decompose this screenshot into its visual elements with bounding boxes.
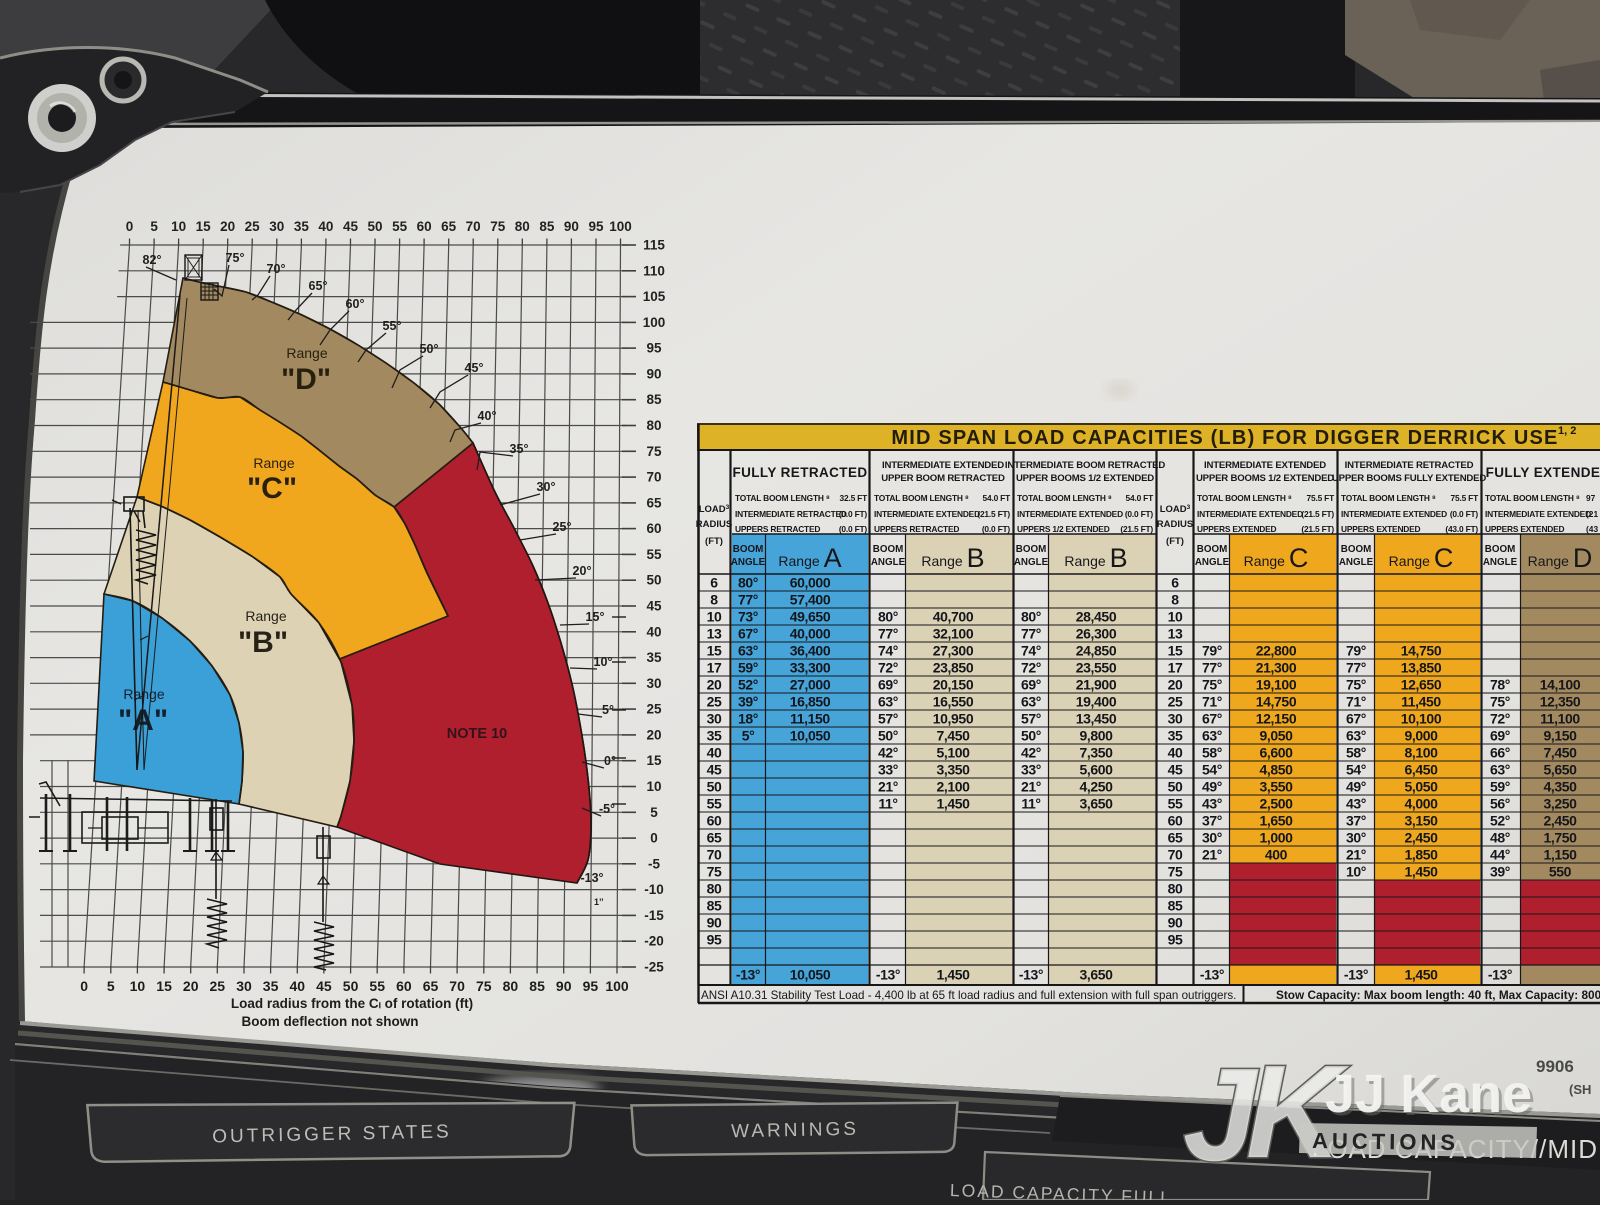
svg-text:14,100: 14,100: [1540, 677, 1581, 693]
svg-text:30: 30: [269, 219, 284, 234]
svg-text:7,450: 7,450: [936, 728, 970, 744]
svg-text:85: 85: [1168, 898, 1183, 914]
svg-text:40: 40: [1168, 745, 1183, 761]
svg-text:ANGLE: ANGLE: [731, 557, 766, 568]
svg-text:20: 20: [1168, 677, 1183, 693]
svg-text:27,000: 27,000: [790, 677, 831, 693]
svg-text:BOOM: BOOM: [1341, 544, 1371, 555]
svg-text:(43.0 FT): (43.0 FT): [1445, 524, 1478, 534]
svg-text:-15: -15: [644, 908, 664, 923]
svg-text:(21: (21: [1586, 509, 1598, 519]
svg-text:9,000: 9,000: [1404, 728, 1438, 744]
svg-text:8,100: 8,100: [1404, 745, 1438, 761]
svg-text:33°: 33°: [1021, 762, 1041, 778]
svg-text:82°: 82°: [143, 253, 162, 267]
svg-text:70: 70: [646, 470, 661, 485]
svg-text:(21.5 FT): (21.5 FT): [977, 509, 1010, 519]
svg-text:11,150: 11,150: [790, 711, 830, 727]
svg-text:55: 55: [1168, 796, 1183, 812]
svg-text:10: 10: [707, 609, 722, 625]
svg-text:35: 35: [263, 978, 279, 994]
svg-text:21,300: 21,300: [1256, 660, 1297, 676]
svg-text:NOTE 10: NOTE 10: [447, 726, 507, 742]
svg-text:85: 85: [707, 898, 722, 914]
svg-text:27,300: 27,300: [933, 643, 974, 659]
svg-text:11°: 11°: [1021, 796, 1040, 812]
svg-text:23,850: 23,850: [933, 660, 974, 676]
svg-text:(FT): (FT): [1166, 536, 1184, 547]
svg-text:50°: 50°: [878, 728, 898, 744]
svg-text:67°: 67°: [1346, 711, 1366, 727]
svg-text:25: 25: [210, 978, 226, 994]
svg-text:12,650: 12,650: [1401, 677, 1442, 693]
svg-text:22,800: 22,800: [1256, 643, 1297, 659]
svg-text:60: 60: [646, 521, 661, 536]
svg-text:115: 115: [643, 238, 665, 253]
svg-text:8: 8: [710, 592, 718, 608]
svg-text:2,450: 2,450: [1404, 830, 1438, 846]
svg-text:35: 35: [1168, 728, 1183, 744]
svg-text:15: 15: [196, 219, 212, 234]
svg-text:69°: 69°: [878, 677, 898, 693]
svg-text:RADIUS: RADIUS: [1157, 519, 1193, 530]
svg-text:74°: 74°: [878, 643, 898, 659]
svg-text:58°: 58°: [1202, 745, 1222, 761]
svg-text:UPPERS RETRACTED: UPPERS RETRACTED: [874, 524, 959, 534]
svg-text:-5: -5: [648, 856, 660, 871]
svg-text:63°: 63°: [738, 643, 758, 659]
svg-text:44°: 44°: [1490, 847, 1510, 863]
svg-text:79°: 79°: [1346, 643, 1366, 659]
svg-text:36,400: 36,400: [790, 643, 831, 659]
svg-text:20: 20: [220, 219, 235, 234]
svg-text:(0.0 FT): (0.0 FT): [839, 524, 868, 534]
svg-text:-13°: -13°: [876, 967, 900, 983]
svg-text:INTERMEDIATE RETRACTED: INTERMEDIATE RETRACTED: [735, 509, 847, 519]
svg-text:45: 45: [646, 599, 662, 614]
svg-text:6: 6: [1171, 575, 1179, 591]
svg-text:(21.5 FT): (21.5 FT): [1301, 524, 1334, 534]
svg-text:80: 80: [503, 978, 519, 994]
svg-text:65: 65: [423, 978, 439, 994]
svg-text:50°: 50°: [1021, 728, 1041, 744]
svg-text:49°: 49°: [1346, 779, 1366, 795]
svg-text:42°: 42°: [878, 745, 898, 761]
svg-text:50°: 50°: [420, 342, 439, 356]
svg-text:(0.0 FT): (0.0 FT): [1450, 509, 1479, 519]
svg-text:43°: 43°: [1202, 796, 1222, 812]
svg-text:21°: 21°: [1021, 779, 1041, 795]
svg-text:LOAD3: LOAD3: [699, 504, 730, 515]
svg-text:35°: 35°: [510, 442, 529, 456]
svg-text:63°: 63°: [1490, 762, 1510, 778]
svg-text:95: 95: [707, 932, 722, 948]
svg-text:BOOM: BOOM: [1485, 544, 1515, 555]
svg-text:67°: 67°: [1202, 711, 1222, 727]
svg-text:AUCTIONS: AUCTIONS: [1312, 1128, 1459, 1155]
svg-text:LOAD3: LOAD3: [1160, 504, 1191, 515]
svg-text:97: 97: [1586, 493, 1596, 503]
svg-text:50: 50: [343, 978, 359, 994]
svg-text:3,150: 3,150: [1404, 813, 1438, 829]
svg-text:95: 95: [646, 341, 662, 356]
svg-text:80°: 80°: [738, 575, 758, 591]
svg-text:ANGLE: ANGLE: [1339, 557, 1374, 568]
svg-text:TOTAL BOOM LENGTH ⁸: TOTAL BOOM LENGTH ⁸: [1485, 493, 1580, 503]
svg-text:40: 40: [646, 624, 661, 639]
svg-text:5,650: 5,650: [1543, 762, 1577, 778]
svg-text:58°: 58°: [1346, 745, 1366, 761]
svg-text:75: 75: [490, 219, 506, 234]
svg-text:13: 13: [1168, 626, 1183, 642]
svg-text:72°: 72°: [1490, 711, 1510, 727]
svg-text:JJ Kane: JJ Kane: [1325, 1064, 1532, 1124]
svg-text:21°: 21°: [878, 779, 898, 795]
svg-text:85: 85: [539, 219, 555, 234]
svg-text:59°: 59°: [1490, 779, 1510, 795]
svg-text:TOTAL BOOM LENGTH ⁸: TOTAL BOOM LENGTH ⁸: [874, 493, 969, 503]
svg-text:UPPERS EXTENDED: UPPERS EXTENDED: [1341, 524, 1421, 534]
svg-text:40,700: 40,700: [933, 609, 974, 625]
svg-text:80: 80: [707, 881, 722, 897]
svg-text:70: 70: [449, 978, 465, 994]
svg-text:3,350: 3,350: [936, 762, 970, 778]
svg-text:WARNINGS: WARNINGS: [731, 1119, 859, 1143]
svg-text:25: 25: [646, 702, 662, 717]
svg-text:30: 30: [236, 978, 252, 994]
svg-text:90: 90: [646, 366, 661, 381]
svg-text:55: 55: [392, 219, 408, 234]
svg-text:1,450: 1,450: [936, 967, 970, 983]
svg-text:1’’: 1’’: [594, 897, 604, 907]
svg-text:(43: (43: [1586, 524, 1598, 534]
svg-text:Range: Range: [253, 455, 294, 471]
svg-text:66°: 66°: [1490, 745, 1510, 761]
svg-text:39°: 39°: [1490, 864, 1510, 880]
svg-text:75°: 75°: [1490, 694, 1510, 710]
svg-text:Stow Capacity: Max boom length: Stow Capacity: Max boom length: 40 ft, M…: [1276, 988, 1600, 1002]
svg-text:39°: 39°: [738, 694, 758, 710]
svg-text:28,450: 28,450: [1076, 609, 1117, 625]
svg-text:30: 30: [646, 676, 661, 691]
svg-text:5,100: 5,100: [936, 745, 970, 761]
svg-text:30°: 30°: [1202, 830, 1222, 846]
svg-text:37°: 37°: [1346, 813, 1366, 829]
svg-text:40,000: 40,000: [790, 626, 831, 642]
svg-text:3,650: 3,650: [1079, 967, 1113, 983]
svg-text:7,350: 7,350: [1079, 745, 1113, 761]
svg-text:75.5 FT: 75.5 FT: [1307, 493, 1336, 503]
svg-text:20: 20: [646, 727, 661, 742]
svg-text:70: 70: [707, 847, 722, 863]
svg-text:95: 95: [588, 219, 604, 234]
svg-text:40°: 40°: [478, 409, 497, 423]
svg-text:72°: 72°: [878, 660, 898, 676]
svg-text:77°: 77°: [1202, 660, 1222, 676]
svg-text:-13°: -13°: [580, 871, 603, 885]
svg-text:14,750: 14,750: [1256, 694, 1297, 710]
svg-text:56°: 56°: [1490, 796, 1510, 812]
svg-text:63°: 63°: [1346, 728, 1366, 744]
svg-text:1,750: 1,750: [1543, 830, 1577, 846]
svg-text:1,000: 1,000: [1259, 830, 1293, 846]
svg-text:"B": "B": [238, 626, 288, 659]
svg-text:(21.5 FT): (21.5 FT): [1301, 509, 1334, 519]
svg-text:-25: -25: [644, 960, 664, 975]
svg-text:11°: 11°: [878, 796, 897, 812]
svg-text:50: 50: [707, 779, 722, 795]
svg-text:90: 90: [1168, 915, 1183, 931]
svg-text:63°: 63°: [1202, 728, 1222, 744]
svg-text:75: 75: [476, 978, 492, 994]
svg-text:75: 75: [1168, 864, 1183, 880]
svg-text:45: 45: [316, 978, 332, 994]
svg-text:59°: 59°: [738, 660, 758, 676]
svg-text:2,450: 2,450: [1543, 813, 1577, 829]
svg-text:10°: 10°: [594, 655, 613, 669]
svg-text:60: 60: [1168, 813, 1183, 829]
svg-text:Load radius from the Cₗ of ro: Load radius from the Cₗ of rotation (ft): [231, 996, 473, 1011]
svg-text:72°: 72°: [1021, 660, 1041, 676]
svg-text:13: 13: [707, 626, 722, 642]
svg-text:65: 65: [707, 830, 722, 846]
svg-text:15°: 15°: [586, 610, 605, 624]
svg-text:1,450: 1,450: [1404, 864, 1438, 880]
svg-text:5: 5: [107, 978, 115, 994]
svg-text:35: 35: [294, 219, 310, 234]
svg-text:19,400: 19,400: [1076, 694, 1117, 710]
svg-text:79°: 79°: [1202, 643, 1222, 659]
svg-text:90: 90: [556, 978, 572, 994]
svg-text:ANGLE: ANGLE: [1014, 557, 1049, 568]
svg-text:INTERMEDIATE EXTENDED: INTERMEDIATE EXTENDED: [1197, 509, 1303, 519]
svg-text:57,400: 57,400: [790, 592, 831, 608]
svg-text:60: 60: [417, 219, 432, 234]
svg-text:TOTAL BOOM LENGTH ⁸: TOTAL BOOM LENGTH ⁸: [1017, 493, 1112, 503]
svg-text:BOOM: BOOM: [733, 544, 763, 555]
svg-text:32.5 FT: 32.5 FT: [840, 493, 869, 503]
svg-text:9,150: 9,150: [1543, 728, 1577, 744]
svg-text:70: 70: [466, 219, 481, 234]
svg-text:-13°: -13°: [1019, 967, 1043, 983]
svg-text:71°: 71°: [1202, 694, 1222, 710]
svg-text:9,800: 9,800: [1079, 728, 1113, 744]
svg-text:25: 25: [1168, 694, 1183, 710]
svg-text:60: 60: [396, 978, 412, 994]
svg-text:INTERMEDIATE EXTENDED: INTERMEDIATE EXTENDED: [882, 460, 1004, 471]
svg-text:33°: 33°: [878, 762, 898, 778]
svg-text:54°: 54°: [1202, 762, 1222, 778]
svg-text:90: 90: [564, 219, 579, 234]
svg-text:80: 80: [1168, 881, 1183, 897]
svg-text:20: 20: [707, 677, 722, 693]
svg-text:10,050: 10,050: [790, 967, 831, 983]
svg-text:Boom deflection not shown: Boom deflection not shown: [242, 1014, 419, 1029]
svg-text:12,150: 12,150: [1256, 711, 1297, 727]
svg-text:FULLY RETRACTED: FULLY RETRACTED: [732, 465, 867, 480]
svg-text:0: 0: [650, 831, 658, 846]
svg-text:21°: 21°: [1346, 847, 1366, 863]
svg-text:25: 25: [245, 219, 261, 234]
svg-text:35: 35: [707, 728, 722, 744]
svg-text:100: 100: [609, 219, 632, 234]
svg-text:1,450: 1,450: [1404, 967, 1438, 983]
svg-text:15: 15: [1168, 643, 1183, 659]
svg-text:INTERMEDIATE EXTENDED: INTERMEDIATE EXTENDED: [1485, 509, 1591, 519]
svg-text:RADIUS: RADIUS: [696, 519, 732, 530]
svg-text:74°: 74°: [1021, 643, 1041, 659]
svg-text:(21.5 FT): (21.5 FT): [1120, 524, 1153, 534]
svg-text:(0.0 FT): (0.0 FT): [982, 524, 1011, 534]
svg-text:0: 0: [80, 978, 88, 994]
svg-text:UPPERS RETRACTED: UPPERS RETRACTED: [735, 524, 820, 534]
svg-text:77°: 77°: [1021, 626, 1041, 642]
svg-text:49,650: 49,650: [790, 609, 831, 625]
svg-text:4,250: 4,250: [1079, 779, 1113, 795]
svg-text:75: 75: [646, 444, 662, 459]
svg-text:100: 100: [643, 315, 666, 330]
svg-text:0°: 0°: [604, 754, 616, 768]
svg-text:21,900: 21,900: [1076, 677, 1117, 693]
svg-text:15: 15: [707, 643, 722, 659]
svg-text:-13°: -13°: [1344, 967, 1368, 983]
svg-text:42°: 42°: [1021, 745, 1041, 761]
svg-text:FULLY EXTENDED: FULLY EXTENDED: [1486, 465, 1600, 480]
svg-text:50: 50: [367, 219, 382, 234]
svg-text:6,600: 6,600: [1259, 745, 1293, 761]
svg-text:57°: 57°: [1021, 711, 1041, 727]
svg-text:TOTAL BOOM LENGTH ⁸: TOTAL BOOM LENGTH ⁸: [1341, 493, 1436, 503]
svg-text:Range: Range: [245, 608, 286, 624]
svg-text:65: 65: [646, 495, 662, 510]
svg-text:UPPERS 1/2 EXTENDED: UPPERS 1/2 EXTENDED: [1017, 524, 1110, 534]
svg-text:100: 100: [605, 978, 629, 994]
svg-text:60°: 60°: [346, 297, 365, 311]
svg-text:40: 40: [318, 219, 333, 234]
svg-text:105: 105: [643, 289, 666, 304]
svg-text:3,250: 3,250: [1543, 796, 1577, 812]
svg-text:10°: 10°: [1346, 864, 1366, 880]
svg-text:80°: 80°: [878, 609, 898, 625]
svg-text:67°: 67°: [738, 626, 758, 642]
svg-text:3,650: 3,650: [1079, 796, 1113, 812]
svg-text:17: 17: [707, 660, 722, 676]
svg-text:20: 20: [183, 978, 199, 994]
svg-text:1, 2: 1, 2: [1558, 425, 1576, 437]
svg-text:UPPER BOOMS FULLY EXTENDED: UPPER BOOMS FULLY EXTENDED: [1332, 473, 1486, 484]
svg-text:UPPER BOOM RETRACTED: UPPER BOOM RETRACTED: [881, 473, 1005, 484]
svg-text:16,550: 16,550: [933, 694, 974, 710]
svg-text:"C": "C": [247, 472, 297, 505]
svg-text:10,950: 10,950: [933, 711, 974, 727]
svg-text:70: 70: [1168, 847, 1183, 863]
svg-text:INTERMEDIATE EXTENDED: INTERMEDIATE EXTENDED: [874, 509, 980, 519]
svg-text:85: 85: [646, 392, 662, 407]
svg-text:5: 5: [650, 805, 658, 820]
svg-text:55: 55: [646, 547, 662, 562]
svg-text:25°: 25°: [553, 520, 572, 534]
svg-text:49°: 49°: [1202, 779, 1222, 795]
svg-text:13,450: 13,450: [1076, 711, 1117, 727]
svg-text:69°: 69°: [1490, 728, 1510, 744]
svg-text:80°: 80°: [1021, 609, 1041, 625]
svg-text:26,300: 26,300: [1076, 626, 1117, 642]
svg-text:75: 75: [707, 864, 722, 880]
svg-text:57°: 57°: [878, 711, 898, 727]
svg-text:10: 10: [171, 219, 186, 234]
svg-text:50: 50: [1168, 779, 1183, 795]
svg-text:5,050: 5,050: [1404, 779, 1438, 795]
svg-text:INTERMEDIATE RETRACTED: INTERMEDIATE RETRACTED: [1345, 460, 1474, 471]
svg-text:11,100: 11,100: [1540, 711, 1580, 727]
svg-text:9906: 9906: [1536, 1057, 1574, 1076]
svg-text:ANGLE: ANGLE: [1483, 557, 1518, 568]
svg-text:30: 30: [1168, 711, 1183, 727]
svg-text:95: 95: [583, 978, 599, 994]
svg-text:75°: 75°: [226, 251, 245, 265]
svg-text:71°: 71°: [1346, 694, 1366, 710]
svg-text:TOTAL BOOM LENGTH ⁸: TOTAL BOOM LENGTH ⁸: [1197, 493, 1292, 503]
svg-text:INTERMEDIATE EXTENDED: INTERMEDIATE EXTENDED: [1341, 509, 1447, 519]
svg-text:90: 90: [707, 915, 722, 931]
svg-text:10: 10: [646, 779, 661, 794]
svg-text:17: 17: [1168, 660, 1183, 676]
svg-text:INTERMEDIATE BOOM RETRACTED: INTERMEDIATE BOOM RETRACTED: [1005, 460, 1165, 471]
svg-text:77°: 77°: [1346, 660, 1366, 676]
svg-text:50: 50: [646, 573, 661, 588]
svg-text:75°: 75°: [1202, 677, 1222, 693]
svg-text:78°: 78°: [1490, 677, 1510, 693]
svg-text:"D": "D": [281, 363, 331, 396]
svg-text:35: 35: [646, 650, 662, 665]
svg-text:77°: 77°: [738, 592, 758, 608]
svg-text:52°: 52°: [738, 677, 758, 693]
svg-text:INTERMEDIATE EXTENDED: INTERMEDIATE EXTENDED: [1017, 509, 1123, 519]
svg-text:5°: 5°: [742, 728, 755, 744]
svg-text:37°: 37°: [1202, 813, 1222, 829]
svg-text:80: 80: [515, 219, 530, 234]
svg-text:43°: 43°: [1346, 796, 1366, 812]
svg-text:10,100: 10,100: [1401, 711, 1442, 727]
svg-text:10,050: 10,050: [790, 728, 831, 744]
svg-text:45: 45: [707, 762, 722, 778]
svg-text:48°: 48°: [1490, 830, 1510, 846]
svg-text:30°: 30°: [537, 480, 556, 494]
svg-text:11,450: 11,450: [1401, 694, 1441, 710]
svg-text:ANGLE: ANGLE: [1195, 557, 1230, 568]
svg-text:65: 65: [441, 219, 457, 234]
svg-text:14,750: 14,750: [1401, 643, 1442, 659]
svg-text:-10: -10: [644, 882, 664, 897]
svg-text:10: 10: [130, 978, 146, 994]
svg-text:40: 40: [290, 978, 306, 994]
svg-text:110: 110: [643, 263, 665, 278]
svg-text:13,850: 13,850: [1401, 660, 1442, 676]
svg-text:75.5 FT: 75.5 FT: [1451, 493, 1480, 503]
svg-text:2,500: 2,500: [1259, 796, 1293, 812]
svg-text:52°: 52°: [1490, 813, 1510, 829]
svg-text:1,850: 1,850: [1404, 847, 1438, 863]
svg-text:6: 6: [710, 575, 718, 591]
svg-text:BOOM: BOOM: [1016, 544, 1046, 555]
svg-text:-20: -20: [644, 934, 664, 949]
svg-text:63°: 63°: [1021, 694, 1041, 710]
svg-text:45: 45: [343, 219, 359, 234]
svg-text:73°: 73°: [738, 609, 758, 625]
svg-text:6,450: 6,450: [1404, 762, 1438, 778]
svg-text:(0.0 FT): (0.0 FT): [1125, 509, 1154, 519]
svg-text:BOOM: BOOM: [1197, 544, 1227, 555]
